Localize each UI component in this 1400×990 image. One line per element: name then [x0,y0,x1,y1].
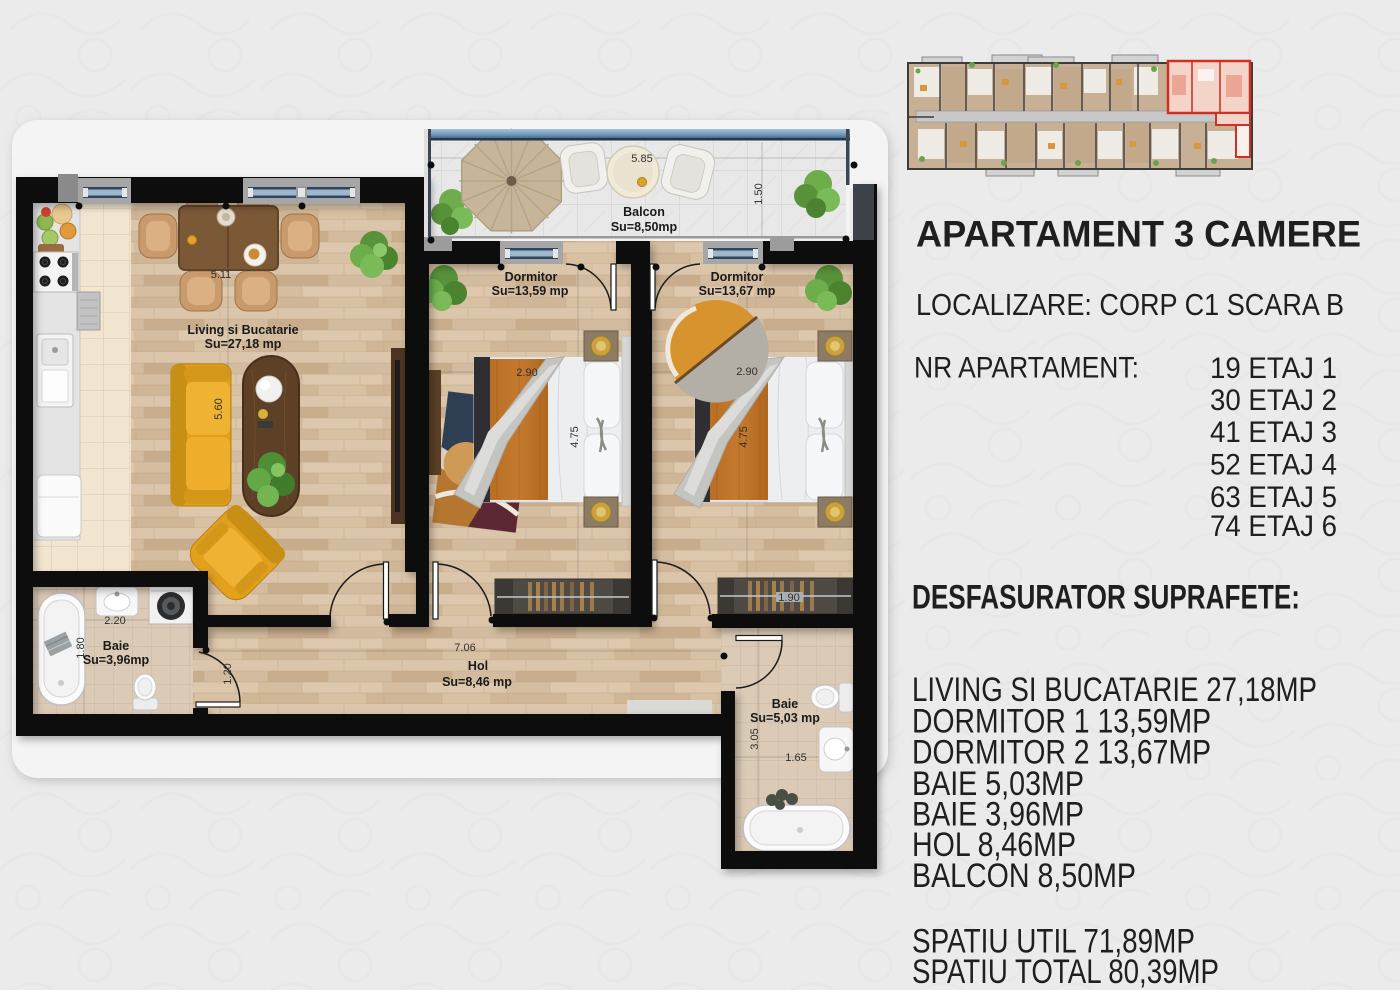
svg-text:30 ETAJ 2: 30 ETAJ 2 [1210,384,1337,417]
svg-text:Dormitor: Dormitor [505,270,558,284]
svg-text:Su=5,03 mp: Su=5,03 mp [750,711,820,725]
svg-text:5.60: 5.60 [213,398,225,419]
svg-text:Su=27,18 mp: Su=27,18 mp [205,337,282,351]
svg-text:19 ETAJ 1: 19 ETAJ 1 [1210,352,1337,385]
svg-text:Hol: Hol [468,659,488,673]
svg-text:DESFASURATOR SUPRAFETE:: DESFASURATOR SUPRAFETE: [912,579,1300,617]
svg-text:5.11: 5.11 [211,269,232,281]
svg-text:Su=8,46 mp: Su=8,46 mp [442,675,512,689]
svg-text:Dormitor: Dormitor [711,270,764,284]
svg-text:1.20: 1.20 [222,663,234,684]
svg-text:Su=13,67 mp: Su=13,67 mp [699,284,776,298]
svg-text:74 ETAJ 6: 74 ETAJ 6 [1210,510,1337,543]
svg-text:5.85: 5.85 [631,153,652,165]
svg-text:2.20: 2.20 [104,615,125,627]
svg-text:Baie: Baie [772,697,798,711]
svg-text:Baie: Baie [103,639,129,653]
svg-text:3.05: 3.05 [749,728,761,749]
svg-text:7.06: 7.06 [454,642,475,654]
svg-text:Living si Bucatarie: Living si Bucatarie [187,323,298,337]
svg-text:4.75: 4.75 [738,426,750,447]
svg-text:Su=3,96mp: Su=3,96mp [83,653,150,667]
svg-text:Su=13,59 mp: Su=13,59 mp [492,284,569,298]
svg-text:SPATIU TOTAL 80,39MP: SPATIU TOTAL 80,39MP [912,953,1219,990]
svg-text:APARTAMENT 3 CAMERE: APARTAMENT 3 CAMERE [916,213,1361,255]
svg-text:Su=8,50mp: Su=8,50mp [611,220,678,234]
svg-text:4.75: 4.75 [569,426,581,447]
svg-text:1.90: 1.90 [778,592,799,604]
svg-text:2.90: 2.90 [516,367,537,379]
svg-text:41 ETAJ 3: 41 ETAJ 3 [1210,416,1337,449]
svg-text:2.90: 2.90 [736,366,757,378]
svg-text:1.65: 1.65 [785,752,806,764]
svg-text:NR APARTAMENT:: NR APARTAMENT: [914,352,1139,385]
svg-text:BALCON 8,50MP: BALCON 8,50MP [912,857,1136,895]
svg-text:1.50: 1.50 [753,183,765,204]
svg-text:1.80: 1.80 [75,637,87,658]
svg-text:Balcon: Balcon [623,205,665,219]
svg-text:LOCALIZARE: CORP C1 SCARA B: LOCALIZARE: CORP C1 SCARA B [916,288,1344,322]
svg-text:52 ETAJ 4: 52 ETAJ 4 [1210,449,1337,482]
